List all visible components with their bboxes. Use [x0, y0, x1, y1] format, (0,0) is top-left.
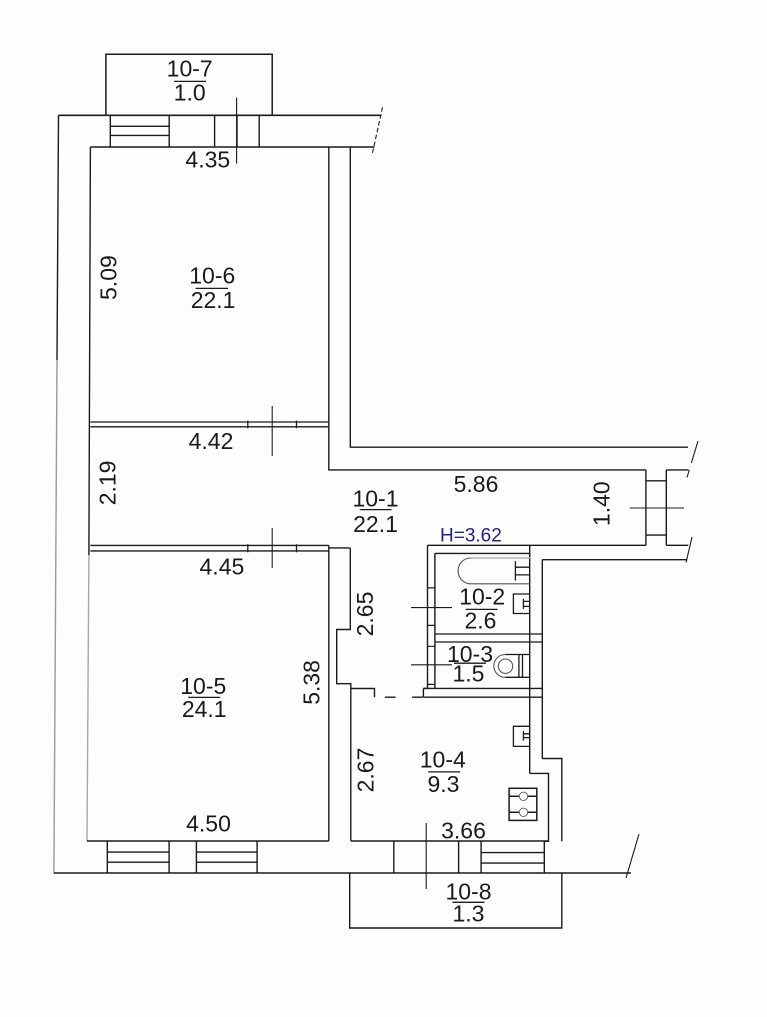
svg-text:1.0: 1.0	[174, 80, 206, 106]
svg-text:24.1: 24.1	[182, 696, 227, 722]
svg-text:2.19: 2.19	[95, 461, 121, 506]
svg-text:1.5: 1.5	[453, 660, 485, 686]
svg-text:10-4: 10-4	[420, 747, 466, 773]
svg-text:H=3.62: H=3.62	[440, 526, 502, 547]
svg-text:10-7: 10-7	[167, 56, 213, 82]
svg-text:10-1: 10-1	[352, 485, 398, 511]
svg-text:10-2: 10-2	[459, 584, 505, 610]
svg-text:5.09: 5.09	[95, 255, 121, 300]
svg-text:1.40: 1.40	[588, 481, 614, 526]
svg-text:10-6: 10-6	[189, 262, 235, 288]
svg-text:5.86: 5.86	[454, 471, 499, 497]
svg-text:22.1: 22.1	[191, 287, 236, 313]
svg-text:4.42: 4.42	[189, 428, 234, 454]
svg-text:22.1: 22.1	[353, 511, 398, 537]
svg-text:3.66: 3.66	[441, 817, 486, 843]
svg-text:10-5: 10-5	[180, 673, 226, 699]
svg-text:2.6: 2.6	[465, 608, 497, 634]
svg-text:4.35: 4.35	[185, 147, 230, 173]
svg-text:2.65: 2.65	[352, 592, 378, 637]
svg-text:4.50: 4.50	[186, 811, 231, 837]
svg-text:9.3: 9.3	[428, 771, 460, 797]
svg-text:2.67: 2.67	[352, 748, 378, 793]
svg-text:4.45: 4.45	[200, 554, 245, 580]
svg-text:1.3: 1.3	[453, 900, 485, 926]
svg-text:5.38: 5.38	[298, 660, 324, 705]
